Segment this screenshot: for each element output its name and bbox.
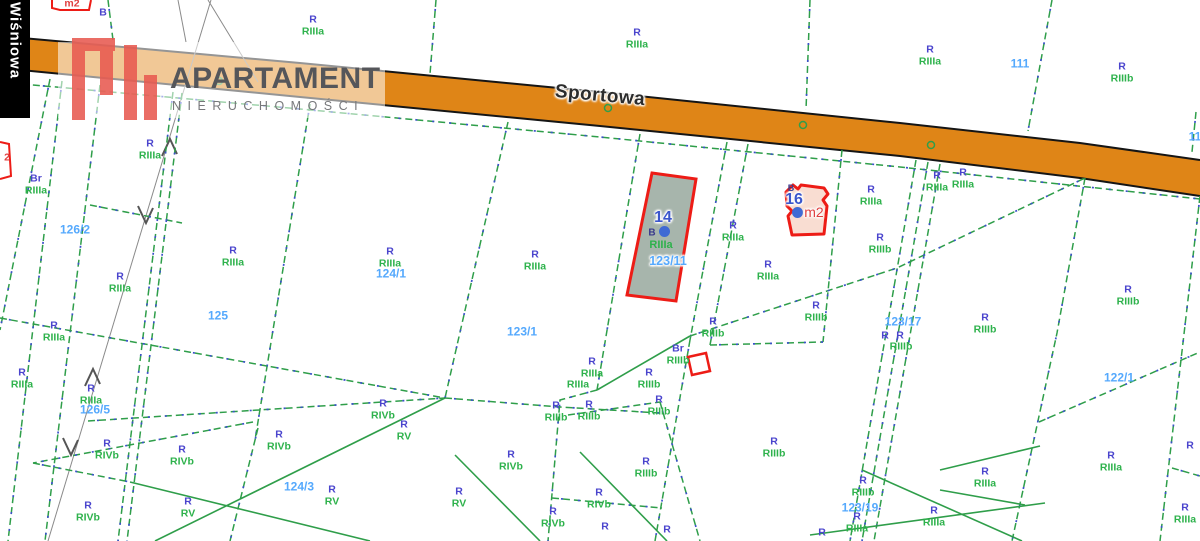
soil-label: RRIIIa: [722, 221, 744, 244]
soil-label: RRIVb: [170, 445, 194, 468]
map-canvas[interactable]: RRIIIaRRIIIaRRIIIaRRIIIbBrRIIIaRRIIIaRRI…: [0, 0, 1200, 541]
parcel-14-building-mark: B: [648, 228, 655, 239]
map-annotation: B: [99, 7, 107, 19]
soil-label: RRV: [397, 420, 411, 443]
agency-logo-icon: [72, 38, 158, 122]
soil-label: RRIIIa: [846, 512, 868, 535]
soil-label: RRIIIa: [919, 45, 941, 68]
soil-label: RRIIIa: [926, 171, 948, 194]
soil-label: RRV: [325, 485, 339, 508]
parcel-point: [659, 226, 670, 237]
parcel-16-area-unit: m2: [804, 204, 823, 220]
soil-label: RRIIIa: [860, 185, 882, 208]
map-annotation: RIIIb: [890, 341, 913, 353]
soil-label: RRIIIa: [524, 250, 546, 273]
parcel-16-number: 16: [785, 191, 803, 209]
soil-label: RRIIIa: [139, 139, 161, 162]
soil-label: RRV: [452, 487, 466, 510]
parcel-number-label: 122/1: [1104, 372, 1134, 384]
parcel-14-parcel-number: 123/11: [649, 254, 687, 268]
soil-label: RRIIIa: [952, 168, 974, 191]
watermark-subtitle: NIERUCHOMOŚCI: [172, 99, 364, 113]
soil-label: RRIIIb: [1117, 285, 1140, 308]
street-sign-text: Wiśniowa: [7, 0, 24, 79]
soil-label: RRIIIa: [43, 321, 65, 344]
soil-label: RRIIIb: [1111, 62, 1134, 85]
soil-label: RRIIIa: [757, 260, 779, 283]
parcel-number-label: 126/5: [80, 404, 110, 416]
soil-label: RRIIIa: [974, 467, 996, 490]
soil-label: RRIIIb: [638, 368, 661, 391]
soil-label: RRIVb: [371, 399, 395, 422]
map-annotation: R: [818, 527, 826, 539]
soil-label: RRIIIb: [763, 437, 786, 460]
soil-label: RRIIIa: [626, 28, 648, 51]
soil-label: RRIVb: [587, 488, 611, 511]
soil-label: RRIIIa: [222, 246, 244, 269]
soil-label: RRIIIb: [648, 395, 671, 418]
soil-label: RRIVb: [267, 430, 291, 453]
soil-label: RRIIIa: [581, 357, 603, 380]
map-annotation: R: [601, 521, 609, 533]
soil-label: RRIVb: [499, 450, 523, 473]
soil-label: RRIIIb: [805, 301, 828, 324]
map-annotation: R: [663, 524, 671, 536]
parcel-number-label: 123/1: [507, 326, 537, 338]
soil-label: RRIVb: [76, 501, 100, 524]
soil-label: RRV: [181, 497, 195, 520]
parcel-number-label: 124/1: [376, 268, 406, 280]
soil-label: RRIIIa: [1174, 503, 1196, 526]
map-annotation: R: [881, 330, 889, 342]
parcel-number-label: 126/2: [60, 224, 90, 236]
watermark: APARTAMENT NIERUCHOMOŚCI: [58, 42, 385, 118]
parcel-14-soil-class: RIIIa: [649, 239, 672, 251]
soil-label: RRIIIa: [109, 272, 131, 295]
soil-label: RRIVb: [95, 439, 119, 462]
parcel-14-number: 14: [654, 209, 672, 227]
soil-label: RRIIIa: [302, 15, 324, 38]
soil-label: BrRIIIa: [25, 174, 47, 197]
soil-label: RRIIIb: [702, 317, 725, 340]
soil-label: RRIIIa: [923, 506, 945, 529]
soil-label: RRIIIa: [11, 368, 33, 391]
map-annotation: RIIIa: [567, 379, 589, 391]
watermark-title: APARTAMENT: [170, 64, 381, 94]
map-annotation: m2: [64, 0, 79, 10]
parcel-number-label: 11: [1189, 131, 1200, 143]
soil-label: RRIIIb: [974, 313, 997, 336]
street-sign-wisniowa: Wiśniowa: [0, 0, 30, 118]
parcel-number-label: 123/17: [885, 316, 922, 328]
soil-label: RRIIIb: [852, 476, 875, 499]
parcel-number-label: 125: [208, 310, 228, 322]
soil-label: RRIVb: [541, 507, 565, 530]
soil-label: RRIIIb: [869, 233, 892, 256]
parcel-number-label: 111: [1011, 58, 1030, 70]
soil-label: RRIIIb: [545, 401, 568, 424]
soil-label: BrRIIIb: [667, 344, 690, 367]
map-annotation: 2: [4, 152, 10, 164]
parcel-number-label: 124/3: [284, 481, 314, 493]
map-annotation: R: [1186, 440, 1194, 452]
soil-label: RRIIIb: [635, 457, 658, 480]
parcel-number-label: 123/19: [842, 502, 879, 514]
soil-label: RRIIIb: [578, 400, 601, 423]
soil-label: RRIIIa: [1100, 451, 1122, 474]
